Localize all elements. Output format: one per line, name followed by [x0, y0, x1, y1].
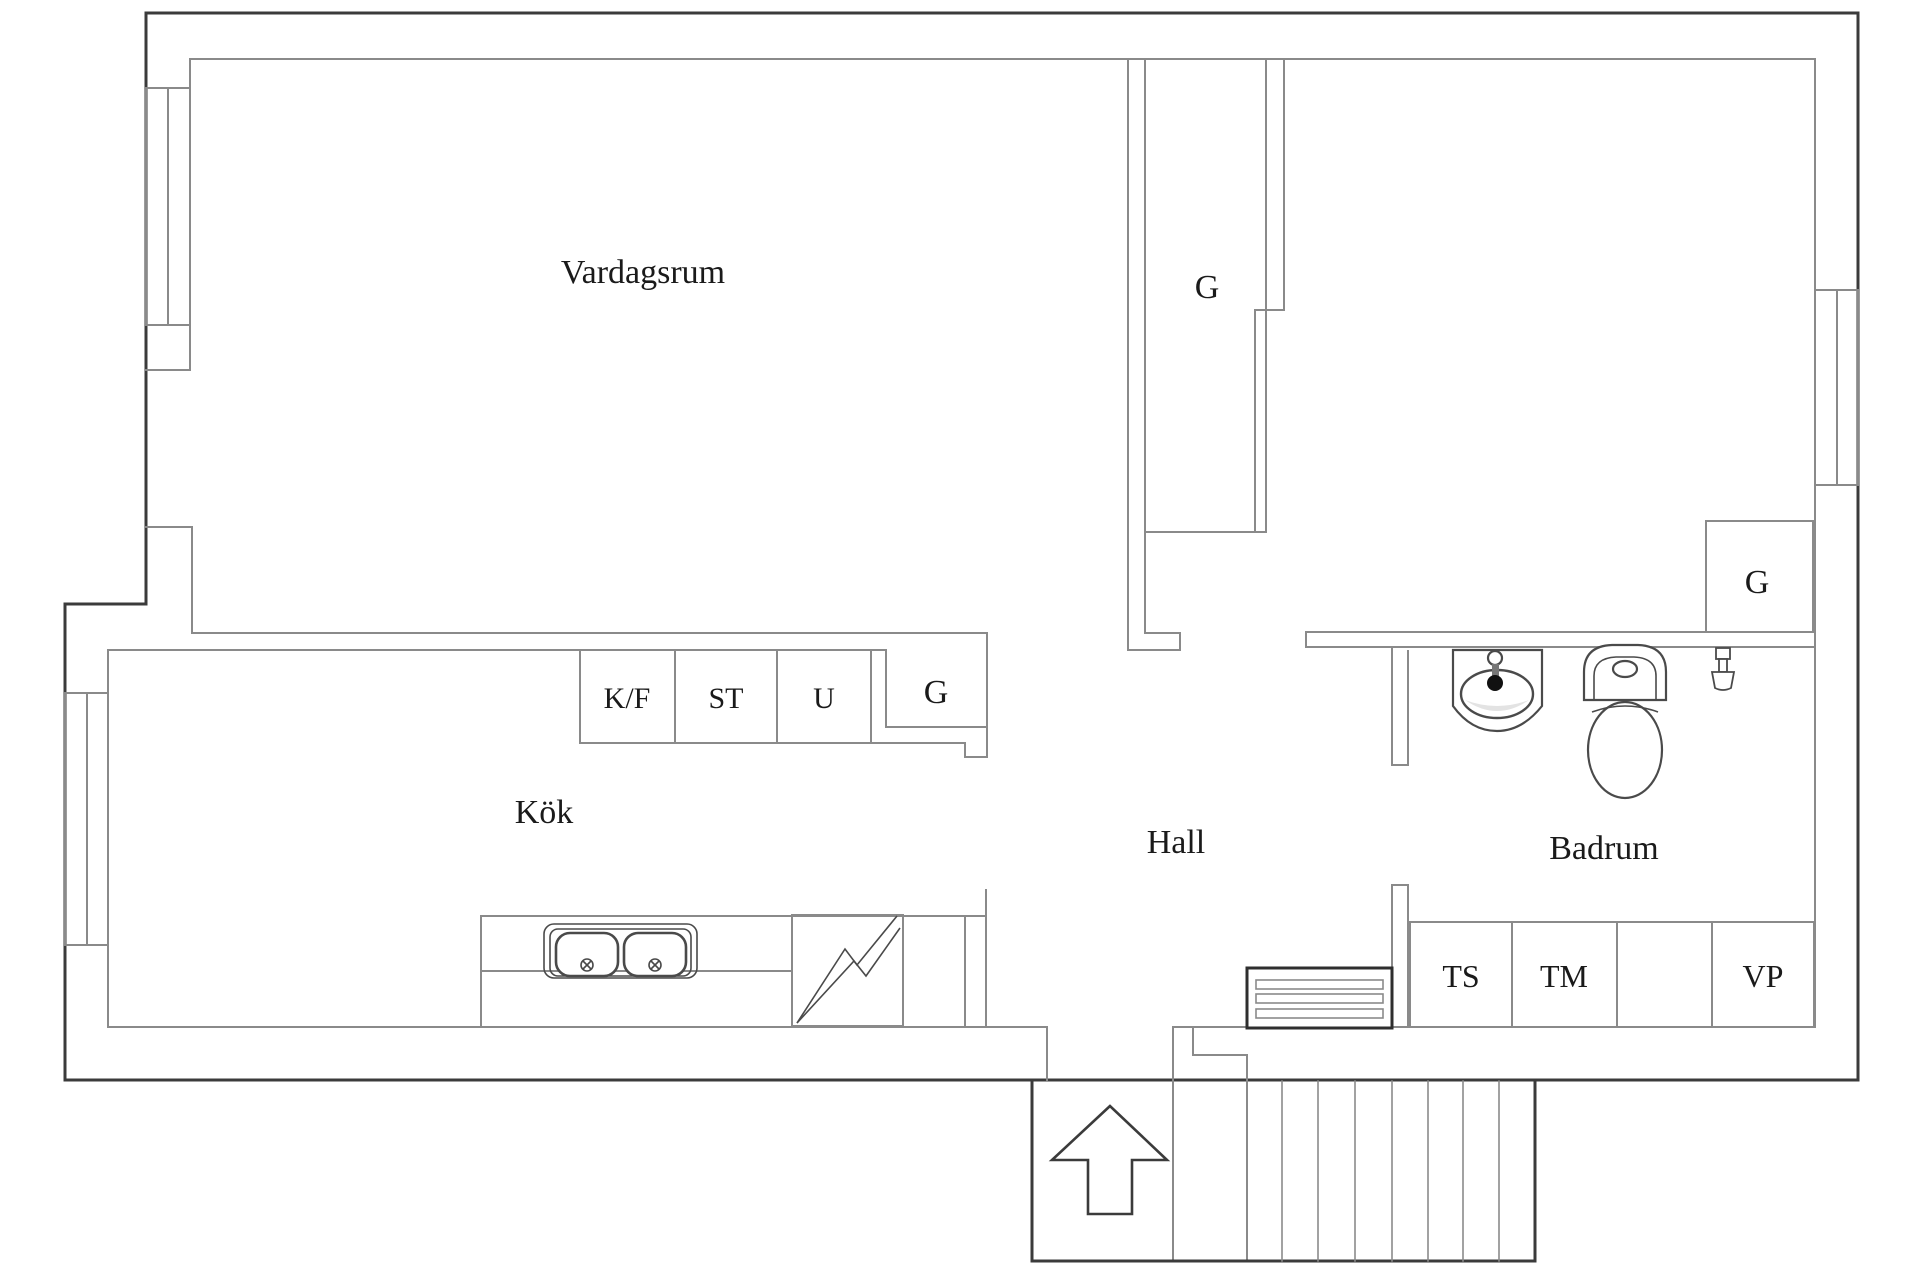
u-label: U [813, 682, 835, 715]
tap-valve-icon [1712, 648, 1734, 690]
exterior-walls [65, 13, 1858, 1080]
arrow-up-icon [1052, 1106, 1167, 1214]
window-right-bedroom [1815, 290, 1858, 485]
hall-label: Hall [1147, 824, 1206, 861]
fridge-freezer-label: K/F [604, 682, 651, 715]
lightning-icon [792, 915, 903, 1026]
stairs-icon [1282, 1081, 1499, 1261]
window-left-living [146, 88, 190, 325]
kitchen-label: Kök [515, 794, 574, 831]
wardrobe-kitchen-label: G [924, 674, 949, 711]
st-label: ST [708, 682, 743, 715]
ts-label: TS [1442, 958, 1479, 994]
tm-label: TM [1540, 958, 1588, 994]
vp-label: VP [1743, 958, 1784, 994]
living-room-label: Vardagsrum [561, 254, 725, 291]
floor-plan: Vardagsrum Kök Hall Badrum G G G K/F ST … [0, 0, 1920, 1280]
wardrobe-middle-label: G [1195, 269, 1220, 306]
toilet-icon [1584, 645, 1666, 798]
washbasin-icon [1453, 650, 1542, 731]
wardrobe-bedroom-label: G [1745, 564, 1770, 601]
window-left-kitchen [65, 693, 108, 945]
double-sink-icon [544, 924, 697, 978]
vent-grille-icon [1247, 968, 1392, 1028]
bathroom-label: Badrum [1549, 830, 1659, 867]
kitchen-counter [481, 916, 965, 1027]
